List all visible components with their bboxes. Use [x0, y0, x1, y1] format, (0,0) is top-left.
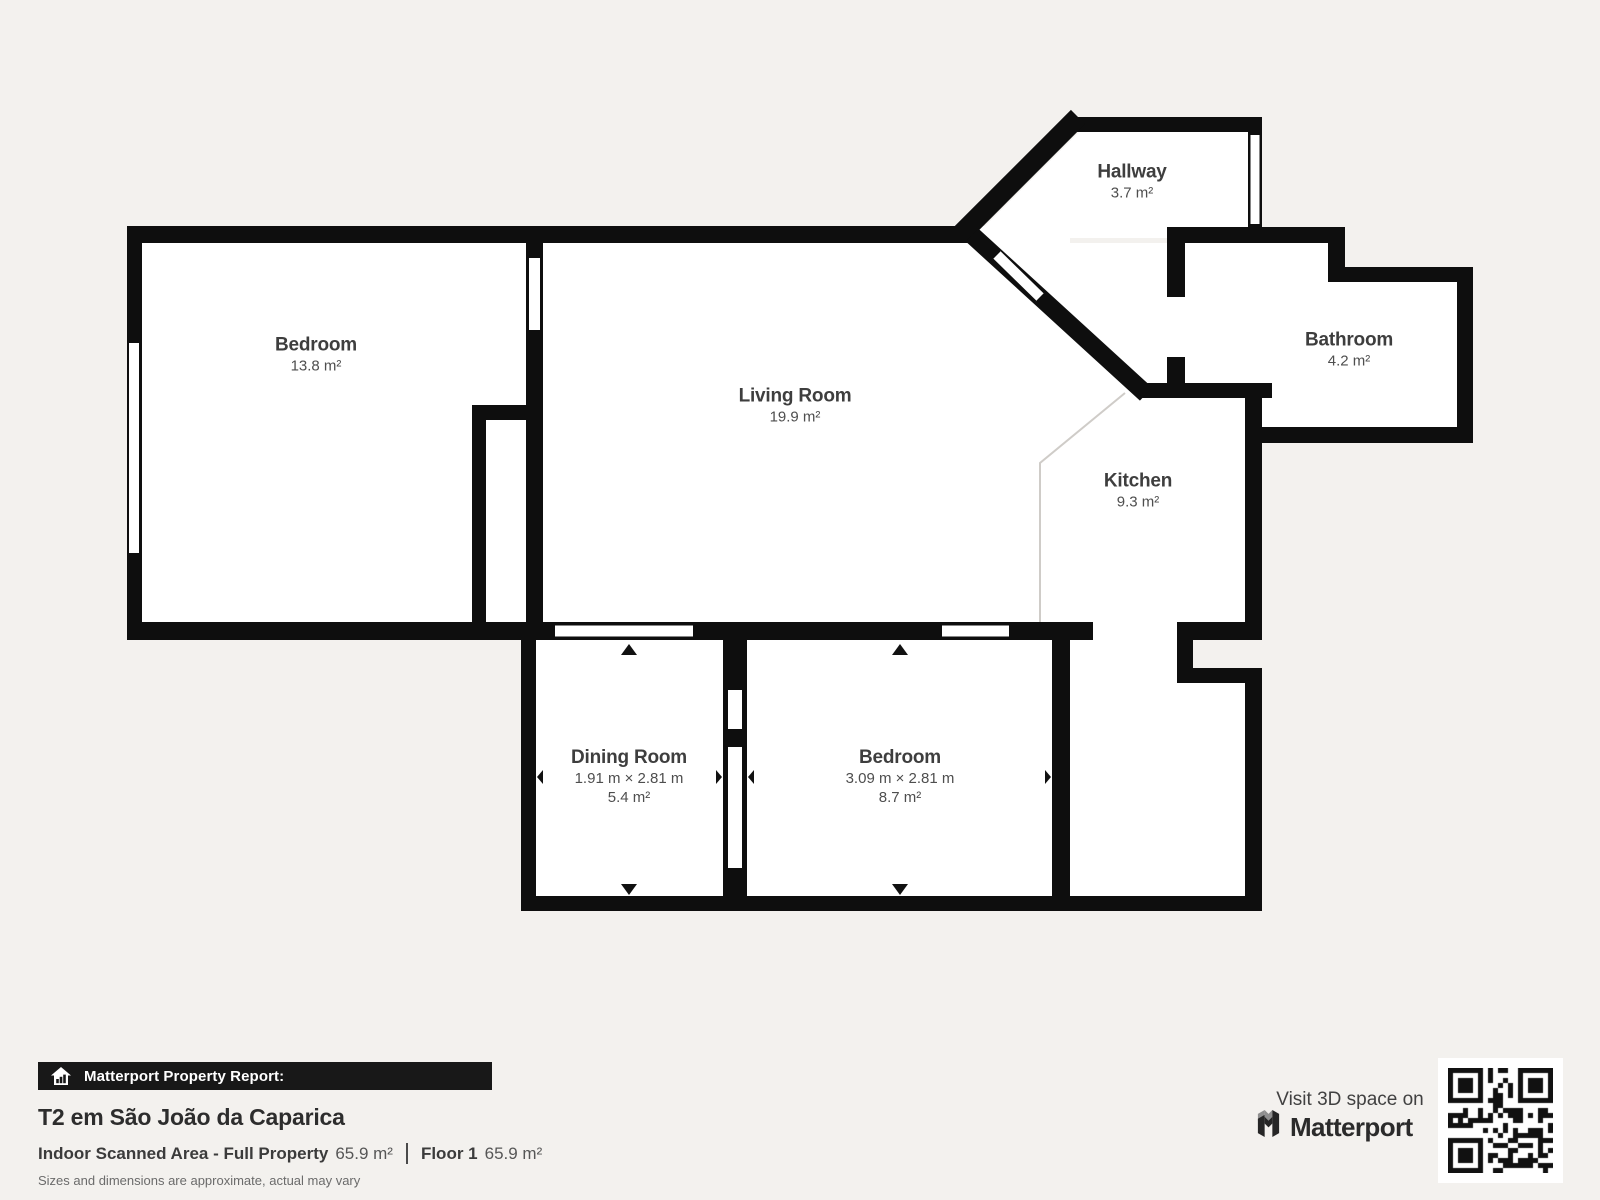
- floorplan-drawing: [0, 0, 1600, 1200]
- report-banner: Matterport Property Report:: [38, 1062, 492, 1090]
- scanned-area-value: 65.9 m²: [335, 1144, 393, 1164]
- divider: [406, 1143, 408, 1164]
- bedroom1-window: [128, 342, 140, 554]
- matterport-logo-link[interactable]: Matterport: [1255, 1110, 1413, 1144]
- property-title: T2 em São João da Caparica: [38, 1104, 658, 1131]
- visit-3d-space-label: Visit 3D space on: [1260, 1089, 1440, 1111]
- bedroom1-pocket-door: [528, 257, 541, 331]
- bedroom2-window: [941, 625, 1010, 638]
- room-label-hallway: Hallway 3.7 m²: [1097, 162, 1166, 203]
- room-label-kitchen: Kitchen 9.3 m²: [1104, 471, 1172, 512]
- scanned-area-label: Indoor Scanned Area - Full Property: [38, 1144, 328, 1164]
- qr-code[interactable]: [1438, 1058, 1563, 1183]
- room-label-bedroom-1: Bedroom 13.8 m²: [275, 335, 357, 376]
- qr-code-pattern: [1448, 1068, 1553, 1173]
- hallway-window: [1250, 134, 1261, 225]
- disclaimer-text: Sizes and dimensions are approximate, ac…: [38, 1173, 658, 1188]
- room-label-living-room: Living Room 19.9 m²: [739, 386, 852, 427]
- matterport-wordmark: Matterport: [1290, 1112, 1413, 1143]
- room-label-dining-room: Dining Room 1.91 m × 2.81 m 5.4 m²: [571, 747, 687, 807]
- bathroom-door-opening: [1165, 297, 1187, 357]
- report-summary: Matterport Property Report: T2 em São Jo…: [38, 1062, 658, 1188]
- dining-window: [554, 625, 694, 638]
- room-label-bedroom-2: Bedroom 3.09 m × 2.81 m 8.7 m²: [846, 747, 955, 807]
- house-report-icon: [51, 1067, 71, 1085]
- matterport-floorplan-report: Bedroom 13.8 m² Living Room 19.9 m² Hall…: [0, 0, 1600, 1200]
- entrance-notch: [1193, 637, 1262, 668]
- room-label-bathroom: Bathroom 4.2 m²: [1305, 330, 1393, 371]
- report-banner-label: Matterport Property Report:: [84, 1068, 284, 1085]
- dining-bedroom-pocket-slot: [727, 746, 743, 869]
- floor-label: Floor 1: [421, 1144, 478, 1164]
- matterport-logo-icon: [1255, 1110, 1282, 1144]
- dining-bedroom-door-slot: [727, 689, 743, 730]
- floor-area-value: 65.9 m²: [485, 1144, 543, 1164]
- scanned-area-line: Indoor Scanned Area - Full Property 65.9…: [38, 1143, 658, 1164]
